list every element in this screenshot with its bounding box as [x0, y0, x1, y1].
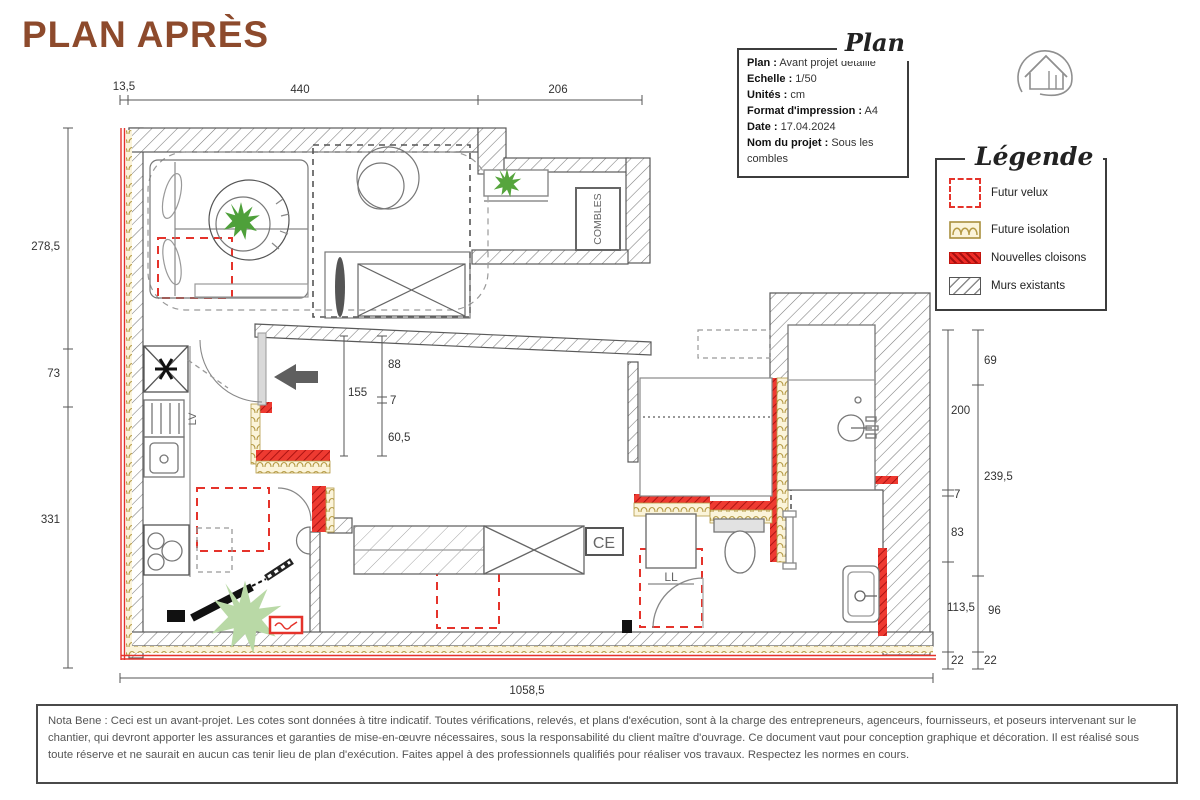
svg-text:60,5: 60,5 — [388, 432, 410, 444]
entry-arrow-icon — [274, 364, 318, 390]
dishwasher-label: LV — [187, 412, 199, 425]
corridor-shelf — [484, 170, 548, 201]
svg-text:96: 96 — [988, 605, 1001, 617]
water-heater-label: CE — [593, 535, 615, 552]
radiator — [270, 617, 302, 633]
bedroom — [640, 330, 772, 496]
svg-text:22: 22 — [984, 655, 997, 667]
floor-plan: COMBLES — [0, 0, 1200, 800]
nota-bene: Nota Bene : Ceci est un avant-projet. Le… — [36, 704, 1178, 784]
svg-text:69: 69 — [984, 355, 997, 367]
water-heater-box: CE — [586, 528, 623, 555]
svg-text:22: 22 — [951, 655, 964, 667]
wardrobe-row — [354, 526, 584, 574]
washing-machine-label: LL — [664, 570, 678, 584]
svg-text:440: 440 — [290, 84, 309, 96]
attic-storage-box: COMBLES — [576, 188, 620, 250]
plant-on-table — [224, 202, 260, 240]
wc-nook — [278, 488, 311, 554]
svg-text:1058,5: 1058,5 — [509, 685, 544, 697]
svg-text:13,5: 13,5 — [113, 81, 135, 93]
svg-text:239,5: 239,5 — [984, 471, 1013, 483]
svg-text:331: 331 — [41, 514, 60, 526]
plan-apres-page: PLAN APRÈS Plan Plan : Avant projet déta… — [0, 0, 1200, 800]
bathroom — [646, 511, 879, 628]
door-stop — [622, 620, 632, 633]
shower-room — [788, 325, 878, 490]
nota-bene-text: Nota Bene : Ceci est un avant-projet. Le… — [48, 715, 1139, 761]
svg-text:73: 73 — [47, 368, 60, 380]
svg-text:206: 206 — [548, 84, 567, 96]
svg-text:7: 7 — [954, 489, 960, 501]
living-room — [148, 152, 488, 310]
svg-text:113,5: 113,5 — [947, 602, 975, 614]
svg-text:200: 200 — [951, 405, 970, 417]
svg-text:155: 155 — [348, 387, 367, 399]
svg-text:83: 83 — [951, 527, 964, 539]
svg-text:278,5: 278,5 — [31, 241, 60, 253]
svg-text:7: 7 — [390, 395, 396, 407]
attic-label: COMBLES — [592, 193, 604, 244]
kitchen — [144, 346, 232, 577]
reading-nook-and-storage — [313, 145, 470, 318]
svg-text:88: 88 — [388, 359, 401, 371]
entry — [200, 333, 318, 405]
